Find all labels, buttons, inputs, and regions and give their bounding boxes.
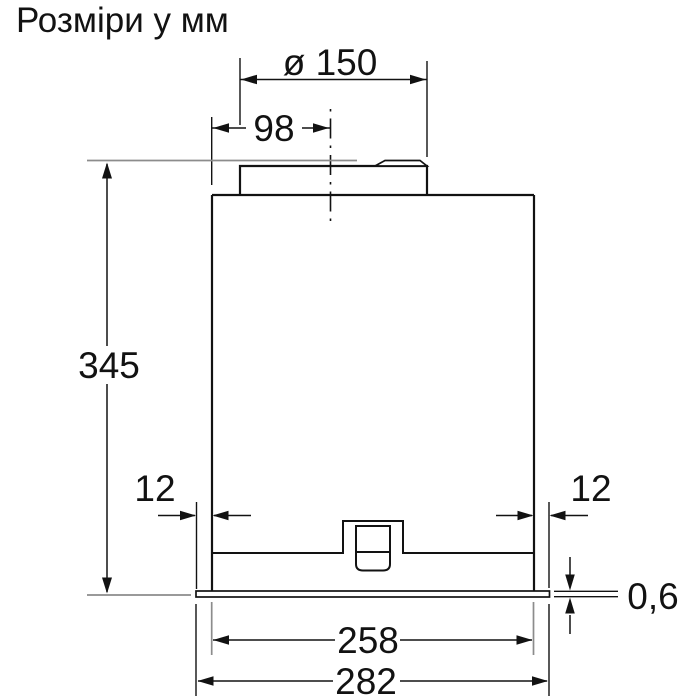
dim-flange-thickness-label: 0,6	[627, 576, 678, 617]
arrow-right-icon	[410, 75, 426, 85]
dim-flange-thickness-extension-lines	[554, 591, 618, 596]
arrow-up-icon	[102, 163, 112, 179]
dimension-drawing-canvas: Розміри у мм ø 150	[0, 0, 700, 700]
arrow-left-icon	[213, 635, 229, 645]
dim-inset-left-label: 12	[134, 468, 175, 509]
dim-inset-right: 12	[496, 468, 612, 588]
dimension-drawing-page: Розміри у мм ø 150	[0, 0, 700, 700]
page-title: Розміри у мм	[16, 1, 229, 40]
duct-collar	[240, 166, 427, 195]
dim-body-height: 345	[78, 161, 357, 596]
arrow-right-icon	[532, 676, 548, 686]
arrow-right-icon	[180, 511, 196, 521]
dim-inset-right-label: 12	[570, 468, 611, 509]
dim-flange-thickness: 0,6	[554, 557, 679, 634]
dim-outer-width-label: 282	[335, 661, 397, 700]
dim-inner-width-label: 258	[337, 620, 399, 661]
bottom-flange	[196, 591, 550, 597]
arrow-left-icon	[241, 75, 257, 85]
dim-duct-offset: 98	[212, 108, 330, 185]
dim-duct-diameter-label: ø 150	[283, 42, 378, 83]
dim-inset-left: 12	[134, 468, 251, 589]
appliance-outline	[196, 109, 550, 597]
arrow-down-icon	[565, 575, 575, 591]
arrow-up-icon	[565, 598, 575, 614]
arrow-right-icon	[518, 511, 534, 521]
dim-body-height-label: 345	[78, 345, 140, 386]
collar-tab	[375, 161, 427, 167]
arrow-left-icon	[198, 676, 214, 686]
arrow-right-icon	[313, 123, 329, 133]
arrow-right-icon	[517, 635, 533, 645]
arrow-left-icon	[213, 511, 229, 521]
arrow-down-icon	[102, 578, 112, 594]
arrow-left-icon	[213, 123, 229, 133]
arrow-left-icon	[550, 511, 566, 521]
terminal-box	[356, 526, 390, 571]
dim-inner-width: 258	[212, 602, 534, 661]
dim-duct-offset-label: 98	[253, 108, 294, 149]
